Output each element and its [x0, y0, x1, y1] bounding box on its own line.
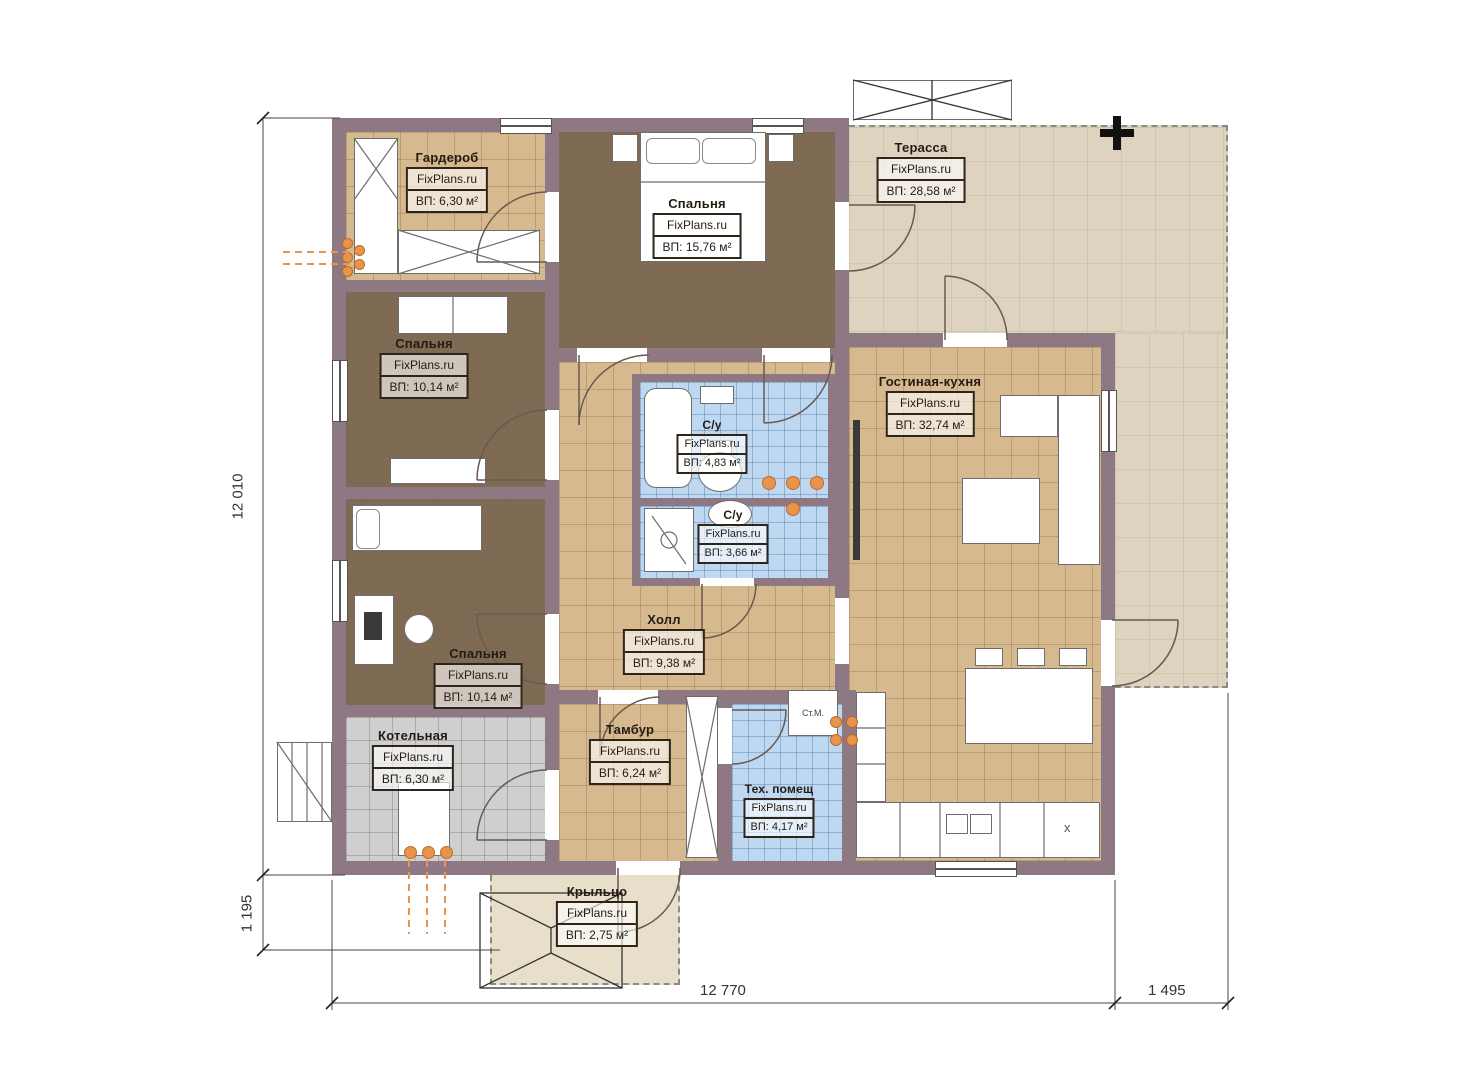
boiler-pipe-dot [404, 846, 417, 859]
room-name: Терасса [877, 140, 966, 155]
kitchen-sink-right [970, 814, 992, 834]
room-name: Холл [623, 612, 705, 627]
room-name: С/у [697, 508, 768, 522]
room-name: Тех. помещ [743, 782, 814, 796]
window-living [1101, 390, 1117, 452]
room-area: ВП: 28,58 м² [879, 179, 964, 201]
radiator-dot [762, 476, 776, 490]
window-wardrobe [500, 118, 552, 134]
room-label-tech: Тех. помещ FixPlans.ru ВП: 4,17 м² [743, 782, 814, 838]
room-name: Спальня [434, 646, 523, 661]
room-name: Гардероб [406, 150, 488, 165]
floor-plan-canvas: x Ст.М. [0, 0, 1473, 1080]
radiator-dot [810, 476, 824, 490]
room-site: FixPlans.ru [678, 436, 745, 453]
room-label-bedroom-mid: Спальня FixPlans.ru ВП: 10,14 м² [380, 336, 469, 399]
room-label-hall: Холл FixPlans.ru ВП: 9,38 м² [623, 612, 705, 675]
tv-panel [853, 420, 860, 560]
room-name: Гостиная-кухня [879, 374, 981, 389]
room-site: FixPlans.ru [436, 665, 521, 685]
washing-machine: Ст.М. [788, 690, 838, 736]
room-label-boiler: Котельная FixPlans.ru ВП: 6,30 м² [372, 728, 454, 791]
room-label-bedroom-low: Спальня FixPlans.ru ВП: 10,14 м² [434, 646, 523, 709]
hob-x-icon: x [1064, 820, 1071, 835]
door-opening-bedroom-mid [545, 410, 559, 480]
room-site: FixPlans.ru [888, 393, 973, 413]
radiator-dot [846, 716, 858, 728]
washing-machine-label: Ст.М. [802, 708, 824, 718]
door-opening-terrace-main [943, 333, 1007, 347]
room-name: С/у [676, 418, 747, 432]
room-site: FixPlans.ru [699, 526, 766, 543]
room-area: ВП: 15,76 м² [655, 235, 740, 257]
nightstand-right [768, 134, 794, 162]
door-opening-boiler [545, 770, 559, 840]
wall-bedroom-divider1 [346, 487, 559, 499]
wardrobe-long-unit [398, 230, 540, 274]
door-opening-tech [718, 708, 732, 764]
wall-exterior-left [332, 118, 346, 875]
dimension-height-total: 12 010 [229, 474, 246, 520]
room-area: ВП: 9,38 м² [625, 651, 703, 673]
opening-hall-living [835, 598, 849, 664]
room-site: FixPlans.ru [558, 903, 636, 923]
room-label-terrace: Терасса FixPlans.ru ВП: 28,58 м² [877, 140, 966, 203]
room-site: FixPlans.ru [655, 215, 740, 235]
window-bedroom-mid [332, 360, 348, 422]
room-name: Спальня [653, 196, 742, 211]
chimney-icon-bar [1100, 129, 1134, 137]
wall-bath-right [828, 374, 836, 586]
computer-icon [364, 612, 382, 640]
room-label-porch: Крыльцо FixPlans.ru ВП: 2,75 м² [556, 884, 638, 947]
room-area: ВП: 4,17 м² [745, 817, 812, 836]
door-opening-bedroom-top [577, 348, 647, 362]
dimension-porch-height: 1 195 [238, 895, 255, 933]
room-name: Тамбур [589, 722, 671, 737]
pillow-left [646, 138, 700, 164]
sofa-vertical [1058, 395, 1100, 565]
room-area: ВП: 10,14 м² [436, 685, 521, 707]
door-opening-bath-corridor [762, 348, 830, 362]
radiator-dot [830, 734, 842, 746]
pillow-right [702, 138, 756, 164]
room-label-living-kitchen: Гостиная-кухня FixPlans.ru ВП: 32,74 м² [879, 374, 981, 437]
chair [404, 614, 434, 644]
room-site: FixPlans.ru [374, 747, 452, 767]
window-bedroom-low [332, 560, 348, 622]
glazed-panel [686, 696, 718, 858]
door-opening-wardrobe [545, 192, 559, 262]
room-site: FixPlans.ru [408, 169, 486, 189]
room-site: FixPlans.ru [591, 741, 669, 761]
room-name: Котельная [372, 728, 454, 743]
kitchen-tall-unit [856, 692, 886, 802]
radiator-dot [786, 476, 800, 490]
radiator-dot [342, 266, 353, 277]
window-kitchen [935, 861, 1017, 877]
room-name: Крыльцо [556, 884, 638, 899]
room-site: FixPlans.ru [745, 800, 812, 817]
room-site: FixPlans.ru [879, 159, 964, 179]
boiler-pipe-dot [440, 846, 453, 859]
dining-chair-1 [975, 648, 1003, 666]
room-area: ВП: 10,14 м² [382, 375, 467, 397]
radiator-dot [830, 716, 842, 728]
room-label-bath-main: С/у FixPlans.ru ВП: 4,83 м² [676, 418, 747, 474]
dining-chair-3 [1059, 648, 1087, 666]
door-opening-vestibule [598, 690, 658, 704]
kitchen-island [962, 478, 1040, 544]
dimension-width-terrace: 1 495 [1148, 982, 1186, 999]
room-area: ВП: 6,30 м² [408, 189, 486, 211]
radiator-dot [342, 252, 353, 263]
room-site: FixPlans.ru [625, 631, 703, 651]
room-area: ВП: 6,24 м² [591, 761, 669, 783]
room-area: ВП: 2,75 м² [558, 923, 636, 945]
door-opening-entrance [616, 861, 680, 875]
pillow-single [356, 509, 380, 549]
room-area: ВП: 4,83 м² [678, 453, 745, 472]
door-opening-bedroom-low [545, 614, 559, 684]
terrace-canopy [853, 80, 1012, 120]
room-name: Спальня [380, 336, 469, 351]
radiator-dot [354, 259, 365, 270]
dimension-width-main: 12 770 [700, 982, 746, 999]
kitchen-sink-left [946, 814, 968, 834]
room-label-vestibule: Тамбур FixPlans.ru ВП: 6,24 м² [589, 722, 671, 785]
sofa-corner [1000, 395, 1058, 437]
closet-bedroom-mid [398, 296, 508, 334]
radiator-dot [846, 734, 858, 746]
side-steps [277, 742, 332, 822]
boiler-unit [398, 782, 450, 856]
room-area: ВП: 6,30 м² [374, 767, 452, 789]
radiator-dot [342, 238, 353, 249]
room-label-bath-shower: С/у FixPlans.ru ВП: 3,66 м² [697, 508, 768, 564]
door-opening-bath-shower [700, 578, 754, 586]
wall-bath-left [632, 374, 640, 586]
radiator-dot [354, 245, 365, 256]
room-area: ВП: 32,74 м² [888, 413, 973, 435]
dining-table [965, 668, 1093, 744]
room-site: FixPlans.ru [382, 355, 467, 375]
room-area: ВП: 3,66 м² [699, 543, 766, 562]
radiator-dot [786, 502, 800, 516]
wall-bath-top [632, 374, 836, 382]
room-label-wardrobe: Гардероб FixPlans.ru ВП: 6,30 м² [406, 150, 488, 213]
dresser-bedroom-mid [390, 458, 486, 484]
nightstand-left [612, 134, 638, 162]
door-opening-terrace-north [835, 202, 849, 270]
room-label-bedroom-top: Спальня FixPlans.ru ВП: 15,76 м² [653, 196, 742, 259]
sink-bath-main [700, 386, 734, 404]
terrace-floor-right [1115, 333, 1228, 688]
boiler-pipe-dot [422, 846, 435, 859]
dining-chair-2 [1017, 648, 1045, 666]
wall-wardrobe-bottom [346, 280, 559, 292]
shower-cabin [644, 508, 694, 572]
door-opening-terrace-side [1101, 620, 1115, 686]
